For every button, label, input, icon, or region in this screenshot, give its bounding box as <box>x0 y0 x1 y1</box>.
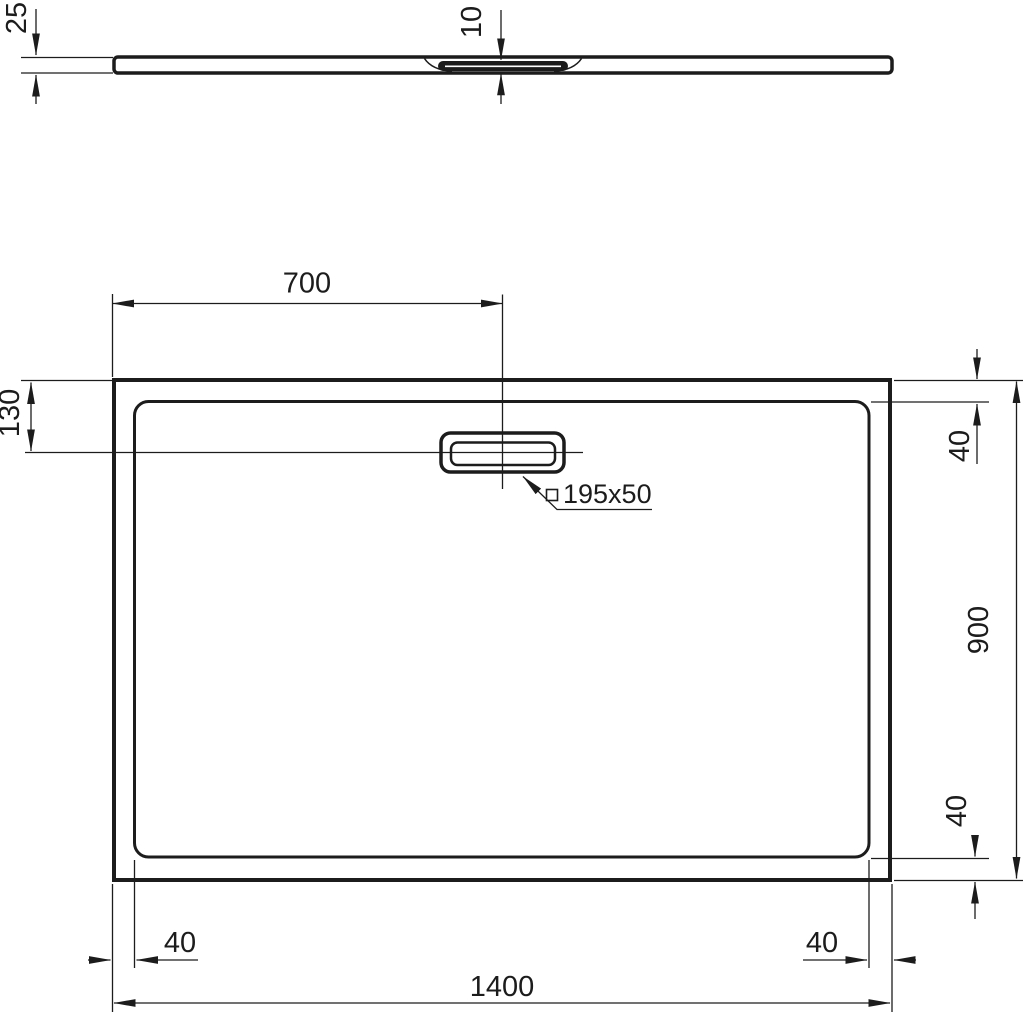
dim-700-text: 700 <box>283 268 331 300</box>
drawing-canvas: 25 10 700 130 <box>0 0 1024 1013</box>
dim-25-text: 25 <box>1 2 33 34</box>
dim-130-text: 130 <box>0 389 26 437</box>
dim-40bl-text: 40 <box>164 927 196 959</box>
dim-40brv-text: 40 <box>941 795 973 827</box>
waste-size-text: 195x50 <box>563 479 652 509</box>
dim-40brh-text: 40 <box>806 927 838 959</box>
dim-900-text: 900 <box>963 606 995 654</box>
dim-40tr-text: 40 <box>944 430 976 462</box>
shower-tray-drawing: 25 10 700 130 <box>0 0 1024 1013</box>
dim-1400-text: 1400 <box>470 971 535 1003</box>
dim-10-text: 10 <box>456 6 488 38</box>
